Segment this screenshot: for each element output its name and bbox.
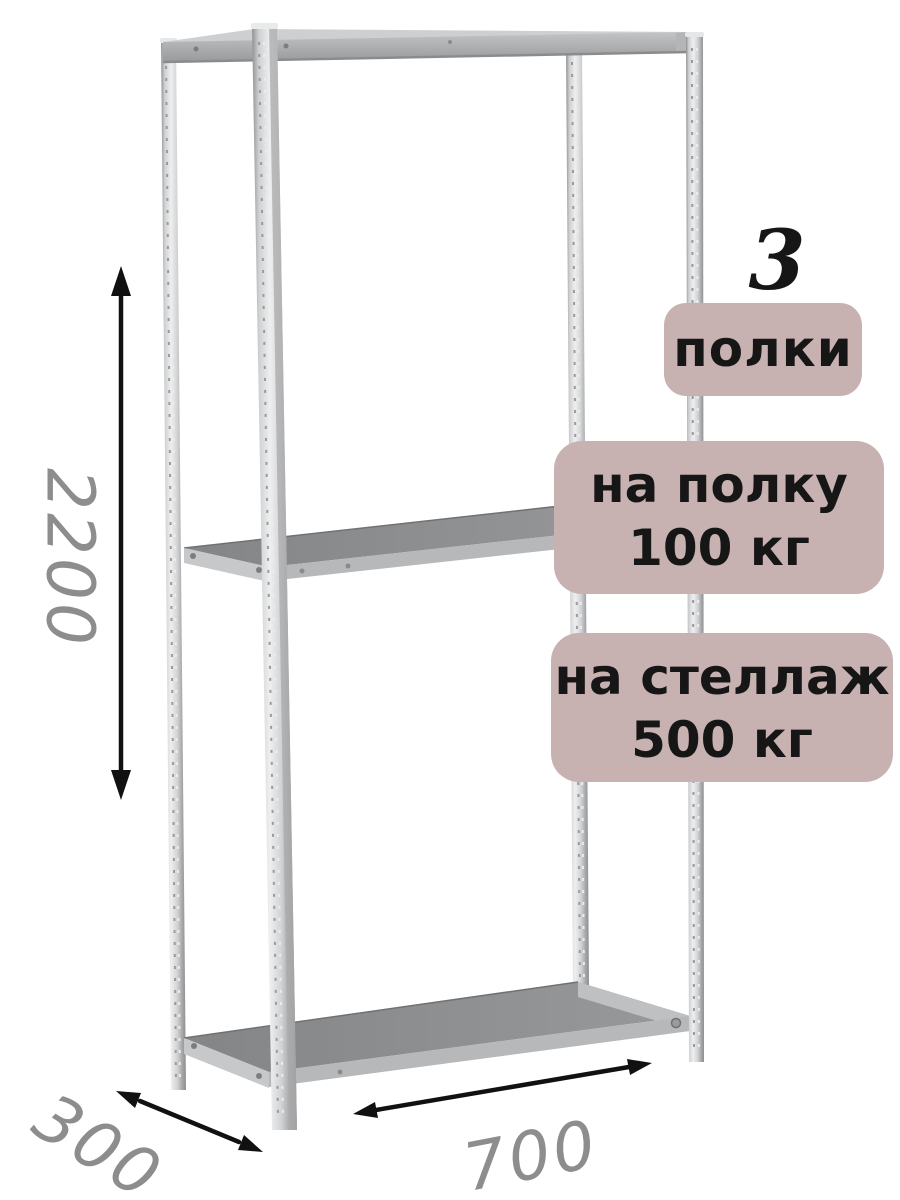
height-dimension-label: 2200 — [32, 468, 109, 648]
rack-load-badge: на стеллаж 500 кг — [551, 633, 893, 782]
shelf-load-line2: 100 кг — [554, 517, 884, 580]
height-dimension-arrow-icon — [111, 266, 131, 800]
product-image: 2200 300 700 3 полки на полку 100 кг на … — [0, 0, 900, 1200]
shelf-count-badge: полки — [664, 303, 862, 396]
rack-shelf-bottom — [184, 982, 690, 1088]
rack-load-line1: на стеллаж — [551, 646, 893, 709]
rack-shelf-top — [163, 29, 690, 62]
rack-load-line2: 500 кг — [551, 709, 893, 772]
rack-post-back-left — [160, 38, 186, 1090]
shelf-load-line1: на полку — [554, 454, 884, 517]
shelf-load-badge: на полку 100 кг — [554, 441, 884, 594]
shelf-count-number: 3 — [717, 220, 837, 302]
rack-and-arrows-canvas — [0, 0, 900, 1200]
